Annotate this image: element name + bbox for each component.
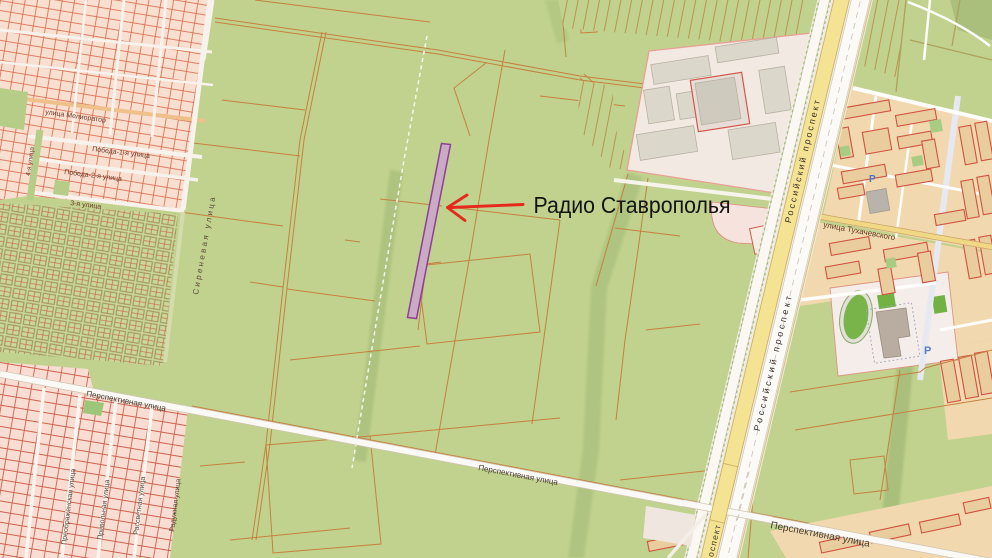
svg-text:Р: Р — [869, 174, 876, 185]
svg-text:Р: Р — [924, 345, 931, 357]
svg-text:Радио Ставрополья: Радио Ставрополья — [534, 192, 731, 218]
